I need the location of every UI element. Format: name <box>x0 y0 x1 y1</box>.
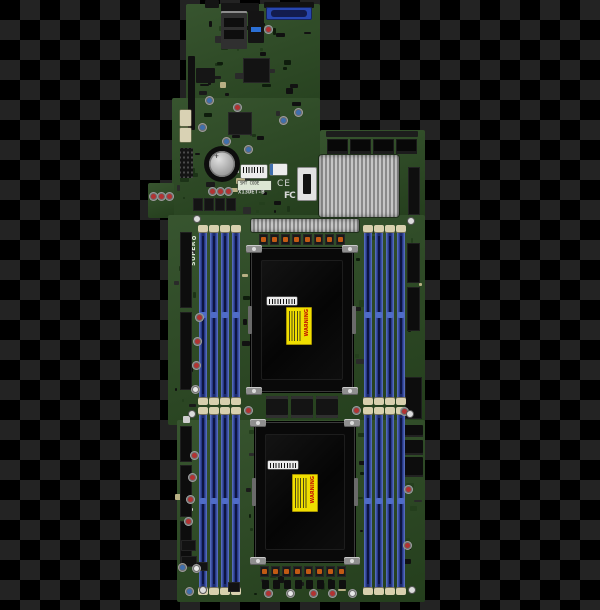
capacitor-top <box>190 475 195 480</box>
dimm-key-notch <box>222 498 228 504</box>
capacitor-top <box>193 387 198 392</box>
mosfet <box>317 580 324 589</box>
dimm-key-notch <box>233 312 239 318</box>
dimm-latch <box>363 587 373 595</box>
socket-screw <box>350 421 354 425</box>
capacitor-top <box>180 565 185 570</box>
vrm-choke-core <box>316 237 321 242</box>
socket-screw <box>252 247 256 251</box>
vrm-choke-core <box>284 569 289 574</box>
capacitor-top <box>194 363 199 368</box>
dimm-latch <box>363 397 373 405</box>
dimm-latch <box>231 397 241 405</box>
capacitor-top <box>311 591 316 596</box>
dimm-latch <box>209 397 219 405</box>
capacitor-top <box>194 566 199 571</box>
dimm-latch <box>396 397 406 405</box>
dimm-latch <box>209 407 219 415</box>
dimm-key-notch <box>376 312 382 318</box>
mosfet <box>262 580 269 589</box>
capacitor-top <box>350 591 355 596</box>
dimm-key-notch <box>365 498 371 504</box>
dimm-latch <box>396 225 406 233</box>
vrm-choke-core <box>305 237 310 242</box>
mosfet <box>295 580 302 589</box>
vrm-choke-core <box>261 237 266 242</box>
dimm-key-notch <box>398 312 404 318</box>
capacitor-top <box>187 589 192 594</box>
socket-screw <box>256 421 260 425</box>
dimm-key-notch <box>211 498 217 504</box>
dimm-key-notch <box>398 498 404 504</box>
vrm-choke-core <box>339 569 344 574</box>
vrm-module <box>291 396 313 418</box>
socket-screw <box>348 247 352 251</box>
capacitor-top <box>218 189 223 194</box>
dimm-latch <box>396 587 406 595</box>
mosfet <box>284 580 291 589</box>
capacitor-top <box>200 125 205 130</box>
dimm-latch <box>231 225 241 233</box>
riser-connector <box>327 139 348 154</box>
edge-connector-horizontal <box>402 457 423 477</box>
capacitor-top <box>288 591 293 596</box>
vrm-module <box>316 396 338 418</box>
dimm-key-notch <box>387 312 393 318</box>
mounting-hole <box>408 586 416 594</box>
socket-screw <box>348 389 352 393</box>
motherboard-product-photo: + SMT CODE X13DET-B CE FC SUPER WARNING <box>0 0 600 610</box>
vrm-choke-core <box>306 569 311 574</box>
parts-layer <box>0 0 600 610</box>
dimm-latch <box>198 407 208 415</box>
edge-connector-vertical <box>407 287 420 331</box>
vrm-choke-core <box>262 569 267 574</box>
dimm-key-notch <box>387 498 393 504</box>
capacitor-top <box>151 194 156 199</box>
capacitor-top <box>354 408 359 413</box>
capacitor-top <box>207 98 212 103</box>
socket-screw <box>350 559 354 563</box>
mounting-hole <box>199 586 207 594</box>
socket-screw <box>252 389 256 393</box>
socket-side-rail <box>352 306 356 334</box>
capacitor-top <box>330 591 335 596</box>
dimm-latch <box>220 397 230 405</box>
mounting-hole <box>188 410 196 418</box>
vrm-choke-core <box>273 569 278 574</box>
vrm-choke-core <box>317 569 322 574</box>
vrm-choke-core <box>295 569 300 574</box>
dimm-key-notch <box>233 498 239 504</box>
dimm-latch <box>198 225 208 233</box>
vrm-choke-core <box>272 237 277 242</box>
capacitor-top <box>246 147 251 152</box>
mosfet <box>273 580 280 589</box>
capacitor-top <box>210 189 215 194</box>
capacitor-top <box>167 194 172 199</box>
ic-chip <box>228 582 240 592</box>
socket-screw <box>256 559 260 563</box>
dimm-key-notch <box>376 498 382 504</box>
dimm-key-notch <box>365 312 371 318</box>
inductor <box>215 198 225 211</box>
inductor <box>226 198 236 211</box>
dimm-latch <box>385 397 395 405</box>
dimm-latch <box>374 397 384 405</box>
capacitor-top <box>235 105 240 110</box>
vrm-choke-core <box>283 237 288 242</box>
edge-connector-horizontal <box>402 425 423 437</box>
vrm-choke-core <box>327 237 332 242</box>
riser-connector <box>396 139 417 154</box>
mosfet <box>328 580 335 589</box>
capacitor-top <box>266 27 271 32</box>
capacitor-top <box>159 194 164 199</box>
mosfet <box>306 580 313 589</box>
edge-connector-vertical <box>180 312 192 390</box>
dimm-latch <box>363 225 373 233</box>
dimm-latch <box>374 407 384 415</box>
edge-connector-vertical <box>180 232 192 308</box>
inductor <box>204 198 214 211</box>
dimm-latch <box>385 407 395 415</box>
dimm-latch <box>220 407 230 415</box>
dimm-latch <box>374 587 384 595</box>
riser-connector <box>350 139 371 154</box>
vrm-module <box>266 396 288 418</box>
capacitor-top <box>192 453 197 458</box>
socket-side-rail <box>354 478 358 506</box>
capacitor-top <box>186 519 191 524</box>
capacitor-top <box>226 189 231 194</box>
mounting-hole <box>407 217 415 225</box>
dimm-latch <box>385 587 395 595</box>
capacitor-top <box>281 118 286 123</box>
dimm-latch <box>220 225 230 233</box>
capacitor-top <box>246 408 251 413</box>
socket-side-rail <box>252 478 256 506</box>
dimm-latch <box>198 397 208 405</box>
capacitor-top <box>188 497 193 502</box>
ic-chip <box>181 540 196 551</box>
vrm-choke-core <box>338 237 343 242</box>
inductor <box>193 198 203 211</box>
capacitor-top <box>197 315 202 320</box>
mounting-hole <box>406 410 414 418</box>
capacitor-top <box>296 110 301 115</box>
riser-connector <box>373 139 394 154</box>
dimm-latch <box>385 225 395 233</box>
dimm-latch <box>209 225 219 233</box>
capacitor-top <box>405 543 410 548</box>
dimm-latch <box>231 407 241 415</box>
dimm-latch <box>209 587 219 595</box>
capacitor-top <box>266 591 271 596</box>
dimm-key-notch <box>211 312 217 318</box>
dimm-latch <box>363 407 373 415</box>
vrm-choke-core <box>328 569 333 574</box>
edge-connector-horizontal <box>402 440 423 455</box>
mosfet <box>339 580 346 589</box>
capacitor-top <box>406 487 411 492</box>
dimm-key-notch <box>200 498 206 504</box>
socket-side-rail <box>248 306 252 334</box>
capacitor-top <box>224 139 229 144</box>
edge-connector-vertical <box>407 243 420 283</box>
mounting-hole <box>193 215 201 223</box>
dimm-key-notch <box>222 312 228 318</box>
dimm-latch <box>374 225 384 233</box>
vrm-choke-core <box>294 237 299 242</box>
capacitor-top <box>195 339 200 344</box>
